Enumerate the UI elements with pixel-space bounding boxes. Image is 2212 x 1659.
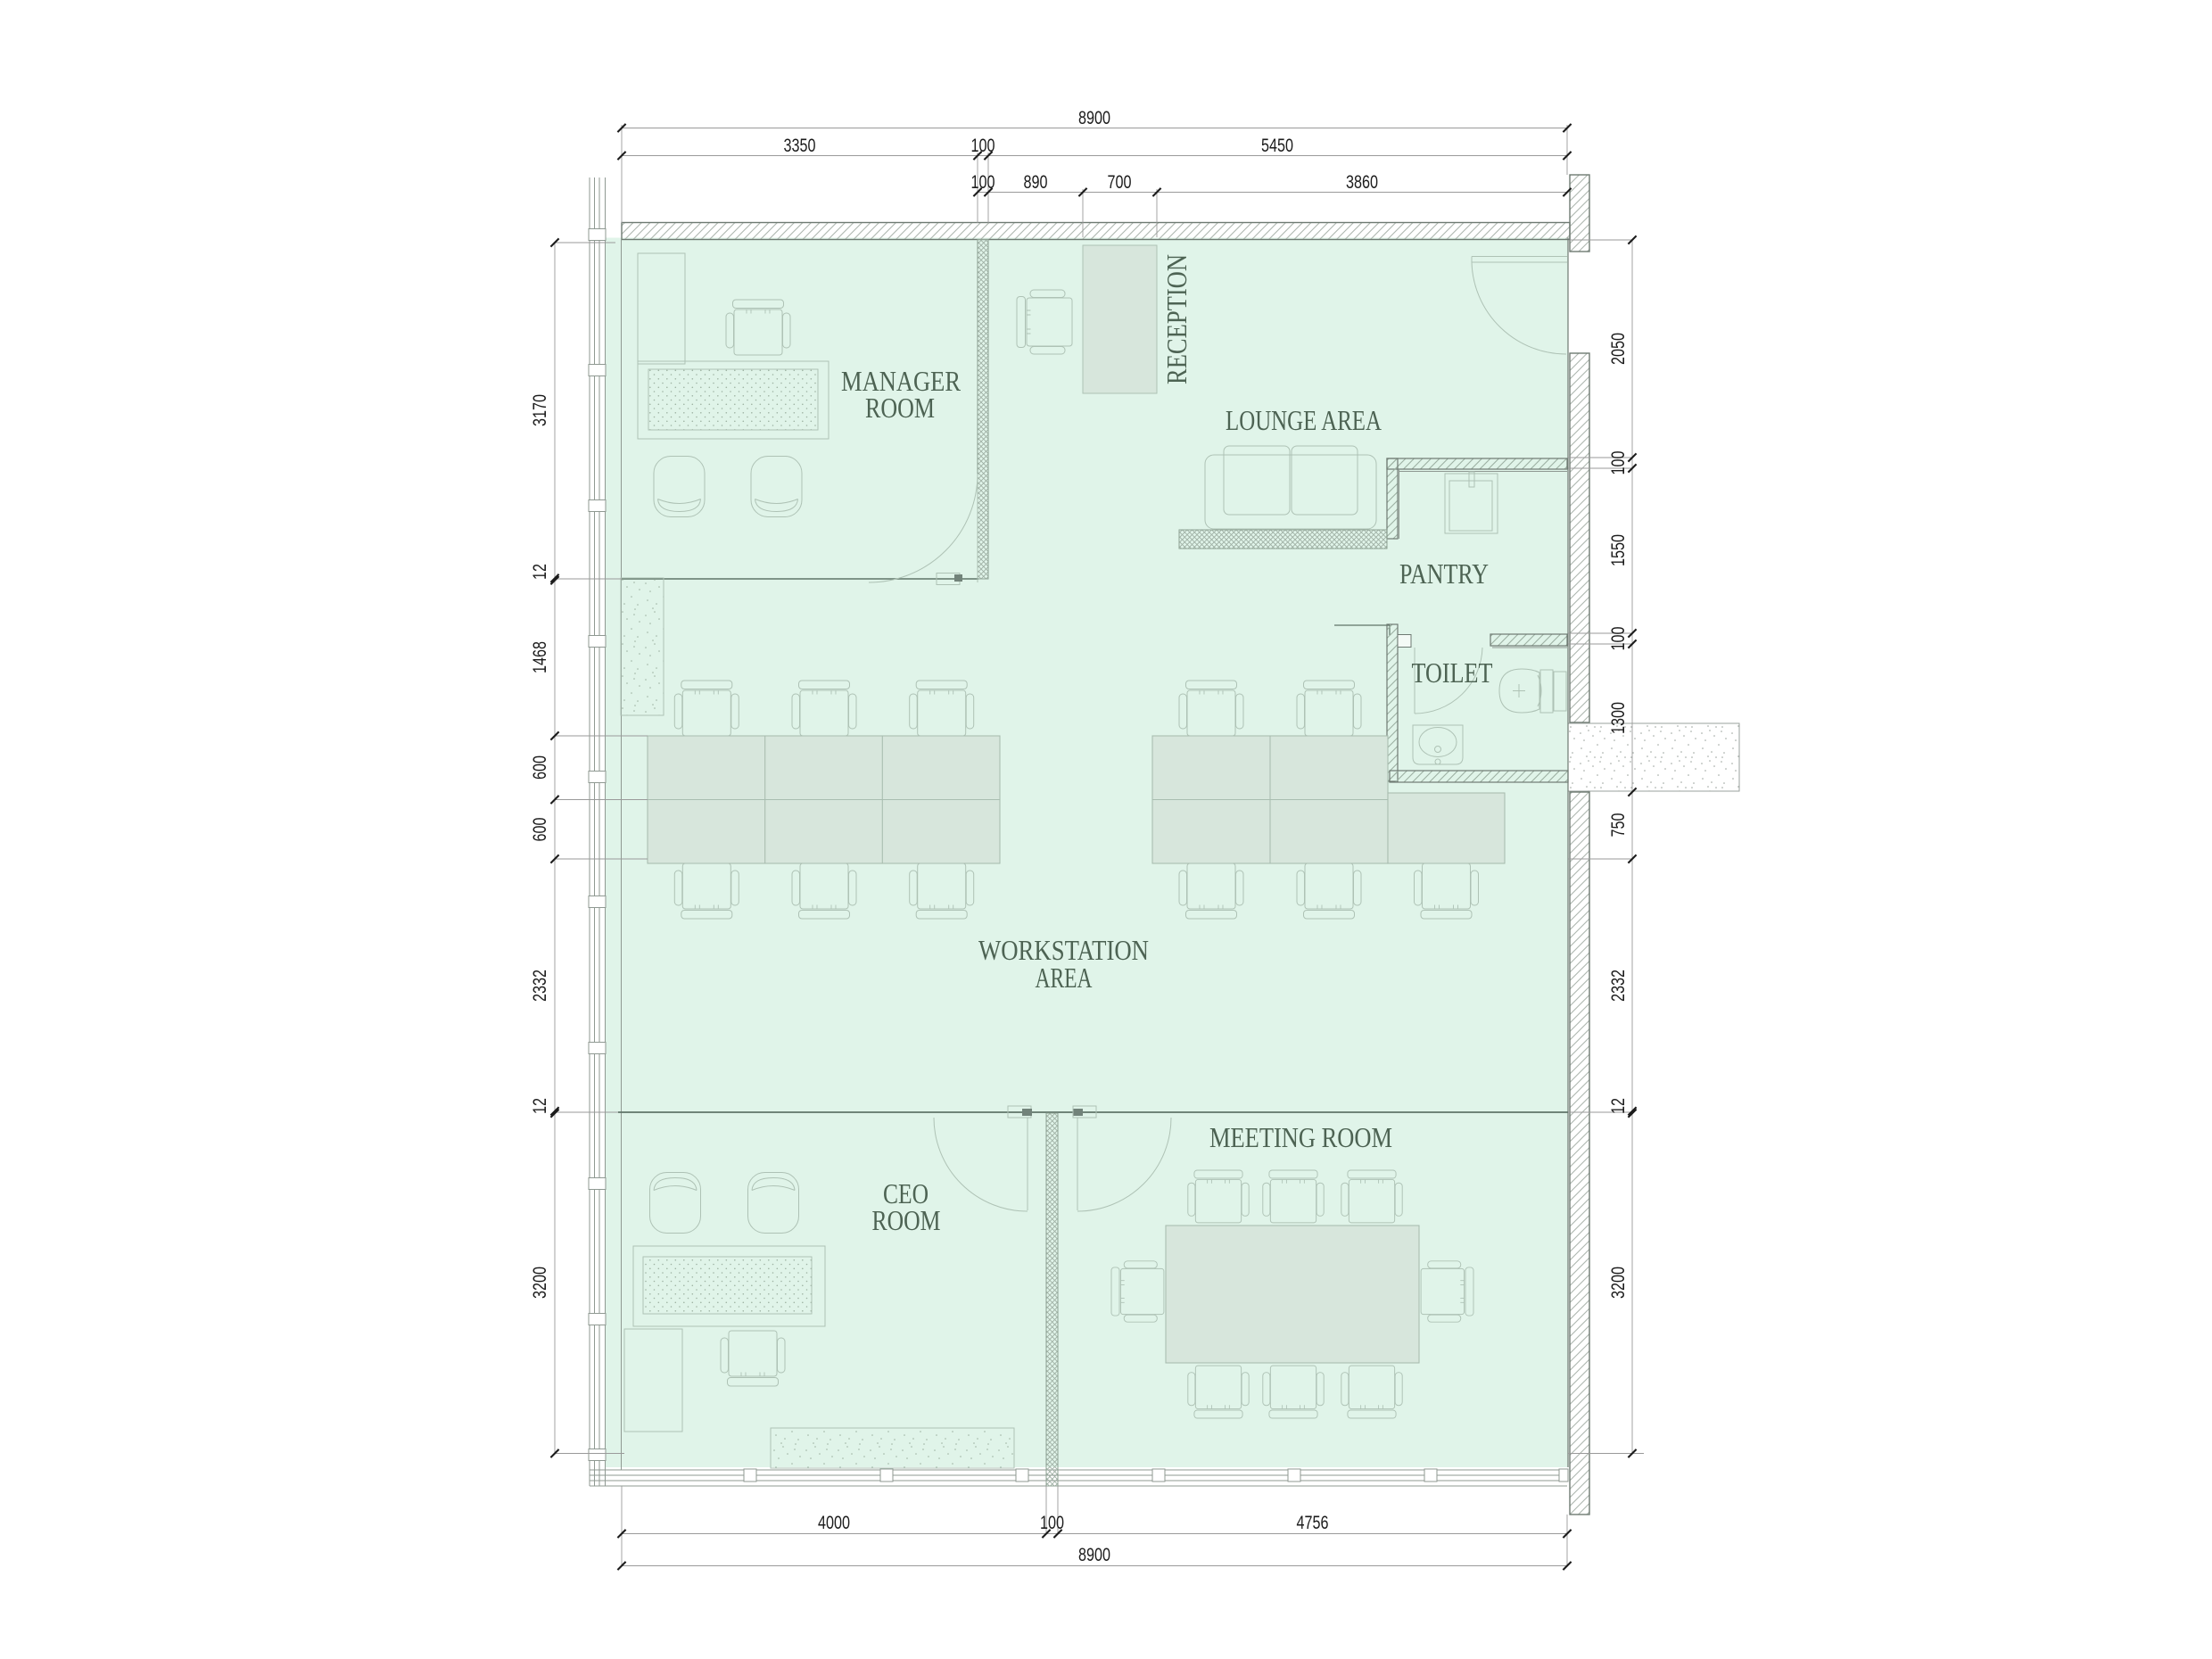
svg-text:750: 750 xyxy=(1608,813,1629,838)
svg-text:2332: 2332 xyxy=(530,970,550,1002)
svg-text:1550: 1550 xyxy=(1608,534,1629,566)
svg-text:3350: 3350 xyxy=(784,136,816,156)
svg-text:1468: 1468 xyxy=(530,641,550,673)
svg-text:3170: 3170 xyxy=(530,394,550,426)
svg-text:12: 12 xyxy=(530,1098,550,1114)
svg-text:TOILET: TOILET xyxy=(1412,656,1493,689)
svg-text:AREA: AREA xyxy=(1036,962,1093,994)
svg-text:ROOM: ROOM xyxy=(872,1204,941,1236)
svg-text:12: 12 xyxy=(530,564,550,580)
svg-text:700: 700 xyxy=(1108,172,1132,193)
svg-text:RECEPTION: RECEPTION xyxy=(1160,254,1193,384)
svg-text:PANTRY: PANTRY xyxy=(1399,557,1489,590)
svg-text:5450: 5450 xyxy=(1261,136,1293,156)
svg-text:100: 100 xyxy=(1040,1513,1064,1533)
svg-text:2332: 2332 xyxy=(1608,970,1629,1002)
svg-text:3200: 3200 xyxy=(530,1267,550,1299)
svg-text:100: 100 xyxy=(1608,451,1629,475)
svg-text:3860: 3860 xyxy=(1346,172,1378,193)
svg-text:1300: 1300 xyxy=(1608,702,1629,734)
svg-text:2050: 2050 xyxy=(1608,333,1629,365)
svg-text:890: 890 xyxy=(1024,172,1048,193)
svg-text:MEETING ROOM: MEETING ROOM xyxy=(1209,1121,1392,1153)
svg-text:4000: 4000 xyxy=(818,1513,850,1533)
svg-text:100: 100 xyxy=(1608,627,1629,651)
svg-text:8900: 8900 xyxy=(1078,1545,1110,1565)
svg-text:LOUNGE AREA: LOUNGE AREA xyxy=(1226,404,1382,436)
svg-text:3200: 3200 xyxy=(1608,1267,1629,1299)
svg-text:100: 100 xyxy=(971,136,995,156)
svg-text:12: 12 xyxy=(1608,1098,1629,1114)
svg-text:4756: 4756 xyxy=(1297,1513,1329,1533)
svg-text:100: 100 xyxy=(971,172,995,193)
svg-text:ROOM: ROOM xyxy=(865,392,935,424)
svg-text:600: 600 xyxy=(530,818,550,842)
svg-text:8900: 8900 xyxy=(1078,108,1110,128)
svg-text:600: 600 xyxy=(530,755,550,780)
